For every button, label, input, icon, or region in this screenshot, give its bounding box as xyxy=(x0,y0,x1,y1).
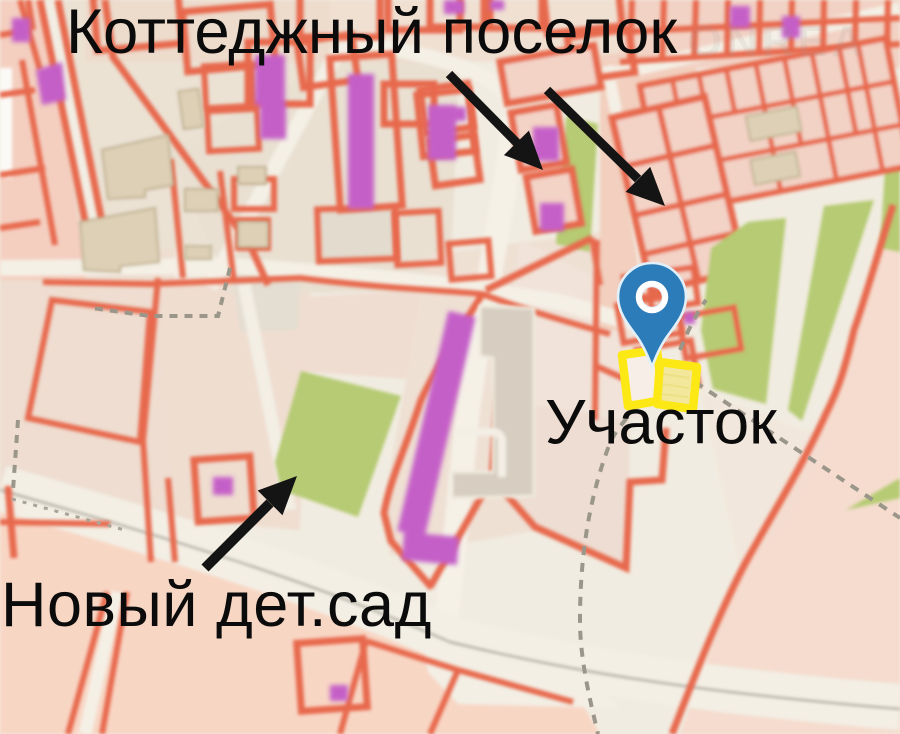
svg-text:Участок: Участок xyxy=(545,388,778,458)
svg-text:Коттеджный поселок: Коттеджный поселок xyxy=(66,0,678,67)
svg-text:Новый дет.сад: Новый дет.сад xyxy=(1,570,432,640)
svg-text:ONREA: ONREA xyxy=(688,17,867,66)
